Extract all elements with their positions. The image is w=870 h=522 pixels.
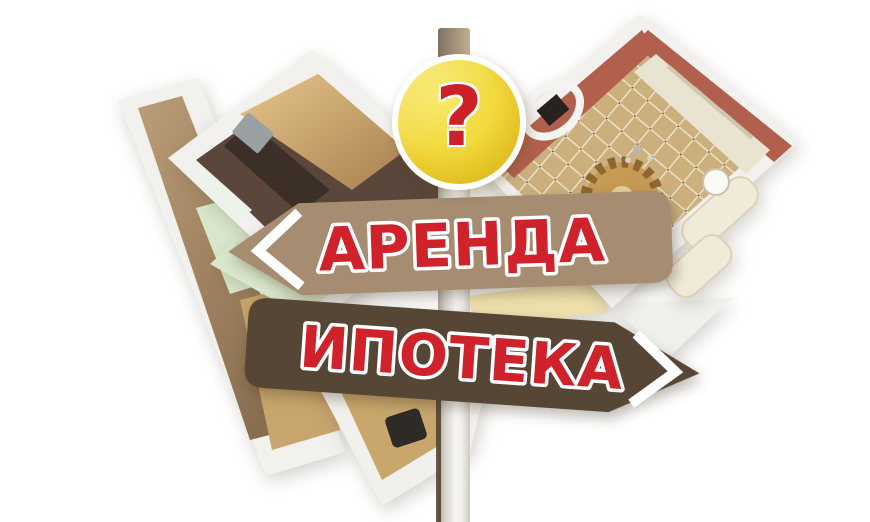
- mortgage-sign: ИПОТЕКА: [243, 297, 702, 418]
- question-badge: ?: [392, 54, 526, 190]
- question-mark-icon: ?: [435, 77, 483, 159]
- rent-sign-label: АРЕНДА: [317, 206, 607, 286]
- rent-vs-mortgage-illustration: АРЕНДА ИПОТЕКА ?: [0, 0, 870, 522]
- rent-sign: АРЕНДА: [227, 190, 674, 297]
